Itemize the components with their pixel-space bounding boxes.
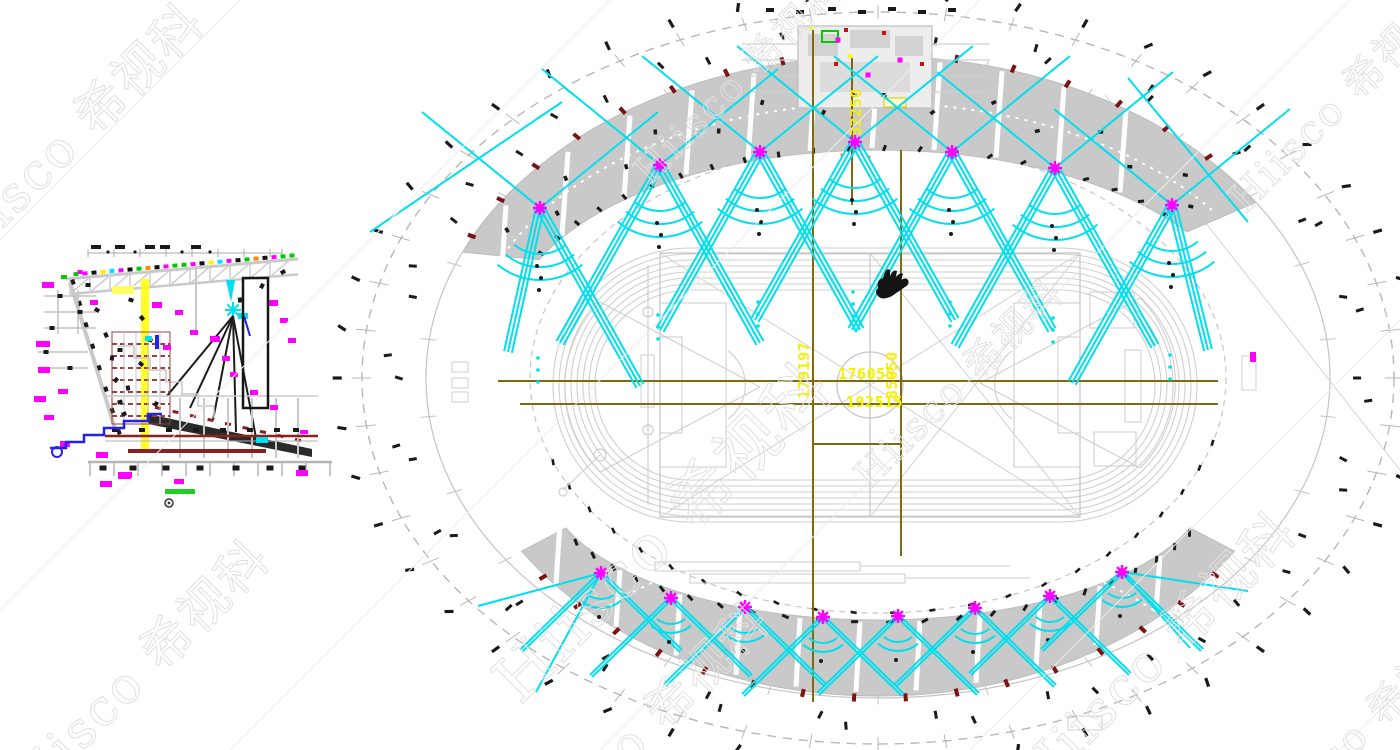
- coordinate-label: 85050: [883, 351, 901, 399]
- watermark-text: Hiisco 希视科: [0, 0, 216, 284]
- watermark-layer: Hiisco 希视科Hiisco 希视科Hiisco 希视科Hiisco 希视科…: [0, 0, 1400, 750]
- watermark-text: Hiisco 希视科: [0, 528, 282, 750]
- coordinate-label: 32250: [847, 88, 865, 136]
- section-view: [34, 245, 332, 507]
- watermark-text: Hiisco 希视科: [1244, 610, 1400, 750]
- cad-canvas[interactable]: 1760551925151791978505032250 Hiisco 希视科H…: [0, 0, 1400, 750]
- pan-hand-icon: [876, 269, 909, 298]
- cad-drawing[interactable]: 1760551925151791978505032250 Hiisco 希视科H…: [0, 0, 1400, 750]
- watermark-text: Hiisco 希视科: [1220, 0, 1400, 222]
